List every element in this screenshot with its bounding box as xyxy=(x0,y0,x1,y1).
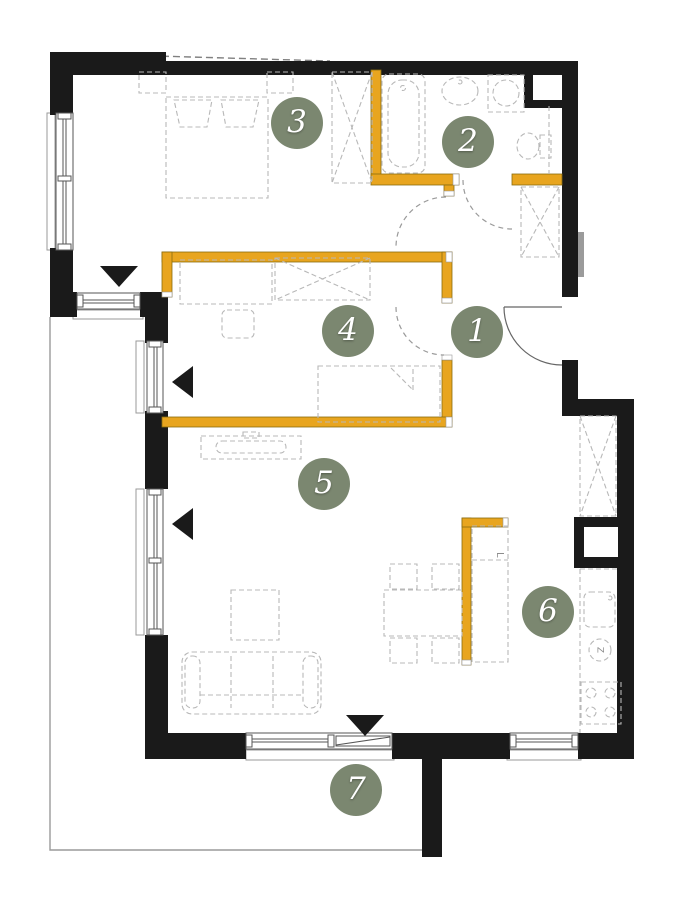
entry-door-arc xyxy=(504,307,562,365)
hall-wardrobe xyxy=(521,187,559,257)
room-badge-3: 3 xyxy=(271,97,323,149)
exterior-pillar xyxy=(578,232,584,277)
wardrobe xyxy=(275,258,370,300)
window-left-2 xyxy=(147,489,163,635)
tall-cabinet xyxy=(580,416,616,516)
dining-chair xyxy=(432,564,459,589)
balcony-door-window xyxy=(246,733,392,749)
windows xyxy=(56,113,578,749)
bedroom-door-arc xyxy=(396,197,446,247)
chair xyxy=(222,310,254,338)
pillow xyxy=(174,100,212,127)
dishwasher-label: Z xyxy=(595,647,605,653)
cooktop xyxy=(581,682,621,724)
desk xyxy=(180,260,272,304)
triangle-marker-left xyxy=(172,366,193,398)
wardrobe xyxy=(332,72,372,183)
single-bed xyxy=(318,366,440,422)
sink xyxy=(442,77,478,105)
toilet xyxy=(517,133,551,159)
room-badge-6: 6 xyxy=(522,586,574,638)
triangle-marker-down xyxy=(100,266,138,287)
dining-set xyxy=(384,564,462,663)
window-left-1 xyxy=(147,341,163,413)
washing-machine xyxy=(488,75,524,112)
pillow xyxy=(221,100,259,127)
accent-walls xyxy=(162,70,562,665)
kitchen-sink xyxy=(584,592,615,627)
bathroom-door-arc xyxy=(463,180,512,229)
room-badge-1: 1 xyxy=(451,306,503,358)
window-sills xyxy=(47,113,581,760)
window-kitchen xyxy=(510,733,578,749)
tv-cabinet xyxy=(201,432,301,459)
kitchen-furniture xyxy=(472,416,621,733)
fridge-label: L xyxy=(494,552,505,558)
floor-plan: L Z 1 2 3 4 5 6 7 xyxy=(0,0,680,900)
kitchen-shaft xyxy=(574,517,630,568)
room4-door-arc xyxy=(396,307,444,355)
triangle-marker-left xyxy=(172,508,193,540)
dining-chair xyxy=(390,564,417,589)
fridge-cabinet xyxy=(472,526,508,662)
nightstand xyxy=(267,72,293,93)
floor-plan-drawing: L Z xyxy=(0,0,680,900)
dining-chair xyxy=(432,638,459,663)
room-badge-5: 5 xyxy=(298,458,350,510)
room-badge-7: 7 xyxy=(330,764,382,816)
entry-door xyxy=(504,307,562,365)
nightstand xyxy=(139,72,166,93)
room4-furniture xyxy=(180,258,440,422)
hallway-furniture xyxy=(521,187,559,257)
window-bedroom xyxy=(56,113,73,250)
coffee-table xyxy=(231,590,279,640)
dining-table xyxy=(384,590,462,636)
bedroom-furniture xyxy=(139,72,372,198)
room-badge-4: 4 xyxy=(322,305,374,357)
window-nook xyxy=(77,293,140,309)
double-bed xyxy=(166,97,268,198)
sofa xyxy=(182,652,321,714)
room-badge-2: 2 xyxy=(442,116,494,168)
bathtub xyxy=(382,74,425,173)
dining-chair xyxy=(390,638,417,663)
